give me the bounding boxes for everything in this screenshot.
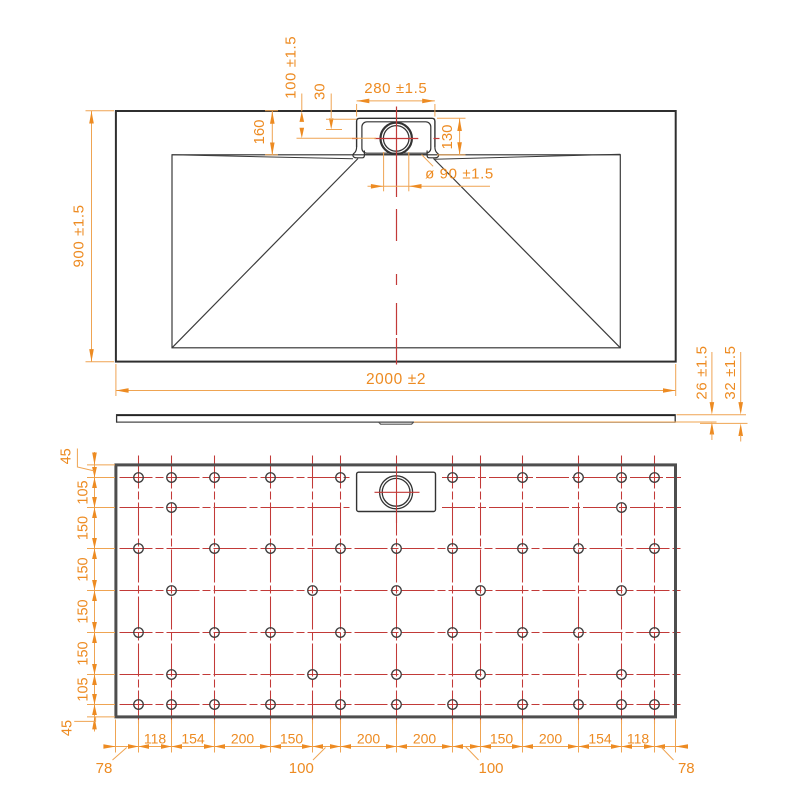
svg-text:2000 ±2: 2000 ±2 (366, 371, 426, 388)
svg-text:130: 130 (439, 124, 456, 149)
svg-text:78: 78 (96, 760, 113, 777)
svg-text:154: 154 (181, 730, 205, 746)
svg-text:150: 150 (280, 730, 304, 746)
svg-text:45: 45 (60, 720, 76, 736)
svg-text:154: 154 (588, 730, 612, 746)
svg-text:78: 78 (678, 760, 695, 777)
svg-text:32 ±1.5: 32 ±1.5 (722, 345, 739, 399)
svg-text:100 ±1.5: 100 ±1.5 (283, 36, 300, 99)
svg-text:200: 200 (539, 730, 563, 746)
svg-text:30: 30 (311, 83, 328, 100)
svg-text:150: 150 (76, 599, 92, 623)
svg-text:105: 105 (76, 677, 92, 701)
svg-text:26 ±1.5: 26 ±1.5 (693, 345, 710, 399)
svg-text:118: 118 (627, 730, 650, 746)
svg-text:200: 200 (413, 730, 437, 746)
svg-text:150: 150 (76, 516, 92, 540)
svg-text:118: 118 (144, 730, 167, 746)
svg-text:105: 105 (76, 480, 92, 504)
svg-text:150: 150 (490, 730, 514, 746)
svg-text:100: 100 (478, 760, 503, 777)
svg-text:900 ±1.5: 900 ±1.5 (71, 204, 88, 267)
svg-text:200: 200 (357, 730, 381, 746)
svg-text:280 ±1.5: 280 ±1.5 (364, 80, 427, 97)
svg-text:150: 150 (76, 557, 92, 581)
svg-text:150: 150 (76, 641, 92, 665)
svg-text:ø 90 ±1.5: ø 90 ±1.5 (425, 166, 494, 183)
svg-text:45: 45 (59, 448, 75, 464)
svg-text:200: 200 (231, 730, 255, 746)
svg-text:160: 160 (251, 119, 268, 144)
svg-text:100: 100 (289, 760, 314, 777)
